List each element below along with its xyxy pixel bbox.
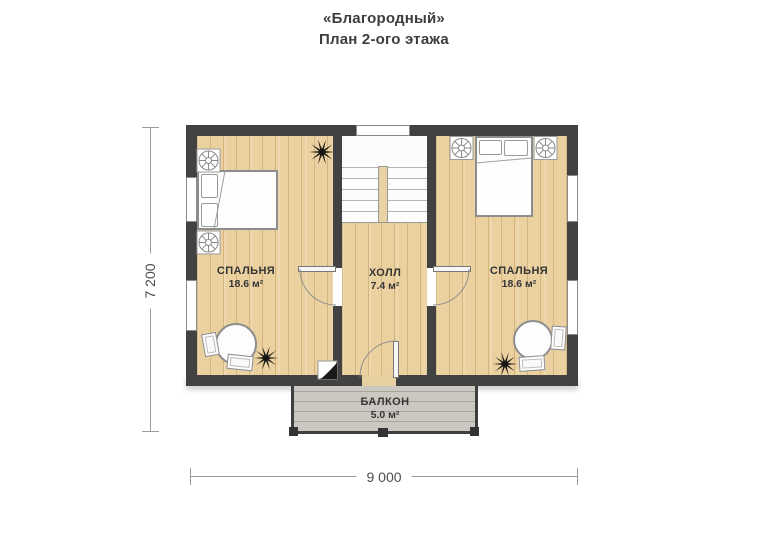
room-area: 18.6 м² xyxy=(490,278,548,290)
pillow xyxy=(201,174,218,198)
window-left-lower xyxy=(186,280,197,331)
window-right-upper xyxy=(567,175,578,222)
door-leaf-bedroom-left xyxy=(298,266,336,272)
room-name: СПАЛЬНЯ xyxy=(217,265,275,278)
door-leaf-bedroom-right xyxy=(433,266,471,272)
dim-label-width: 9 000 xyxy=(356,469,411,485)
pillow xyxy=(201,203,218,227)
chair xyxy=(226,354,253,372)
room-name: СПАЛЬНЯ xyxy=(490,265,548,278)
chair xyxy=(550,326,567,351)
balcony-post xyxy=(378,428,388,437)
dim-label-height: 7 200 xyxy=(142,253,158,308)
room-name: БАЛКОН xyxy=(361,396,410,409)
balcony-post xyxy=(470,427,479,436)
wall-left xyxy=(186,125,197,386)
partition-right-lower xyxy=(427,306,436,375)
room-name: ХОЛЛ xyxy=(369,267,401,280)
pillow xyxy=(504,140,528,156)
partition-right-upper xyxy=(427,136,436,268)
room-label-bedroom-right: СПАЛЬНЯ 18.6 м² xyxy=(490,265,548,290)
room-label-bedroom-left: СПАЛЬНЯ 18.6 м² xyxy=(217,265,275,290)
door-leaf-balcony xyxy=(393,341,399,378)
room-area: 7.4 м² xyxy=(369,280,401,292)
window-top xyxy=(356,125,410,136)
dim-cap xyxy=(142,127,159,128)
wall-right xyxy=(567,125,578,386)
dim-cap xyxy=(190,468,191,485)
stair-divider xyxy=(378,166,388,223)
window-left-upper xyxy=(186,177,197,222)
window-right-lower xyxy=(567,280,578,335)
partition-left-lower xyxy=(333,306,342,375)
room-label-balcony: БАЛКОН 5.0 м² xyxy=(361,396,410,421)
room-area: 18.6 м² xyxy=(217,278,275,290)
balcony-door-opening xyxy=(362,375,396,386)
partition-left-upper xyxy=(333,136,342,268)
dim-cap xyxy=(142,431,159,432)
chair xyxy=(519,355,546,372)
room-label-hall: ХОЛЛ 7.4 м² xyxy=(369,267,401,292)
round-table-right xyxy=(513,320,553,360)
balcony-post xyxy=(289,427,298,436)
pillow xyxy=(479,140,502,155)
floor-plan: СПАЛЬНЯ 18.6 м² ХОЛЛ 7.4 м² СПАЛЬНЯ 18.6… xyxy=(0,0,768,543)
dim-cap xyxy=(577,468,578,485)
room-area: 5.0 м² xyxy=(361,409,410,421)
